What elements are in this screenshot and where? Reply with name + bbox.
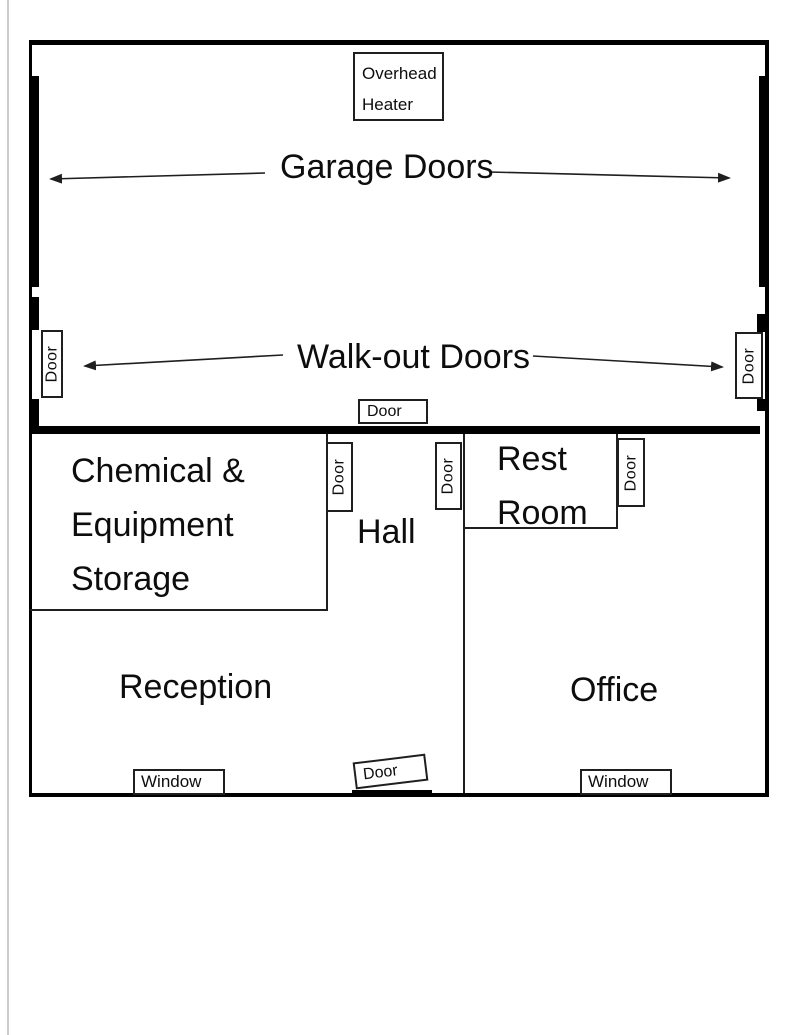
storage-room-label: Chemical & Equipment Storage <box>71 444 245 606</box>
office-label: Office <box>570 663 658 717</box>
storage-door-box: Door <box>326 442 353 512</box>
walkout-left-door-label: Door <box>43 346 61 383</box>
reception-window-label: Window <box>135 772 201 792</box>
walkout-doors-arrow-left <box>85 355 283 366</box>
walkout-left-door-box: Door <box>41 330 63 398</box>
entrance-door-label: Door <box>355 762 399 785</box>
storage-room-label-line1: Chemical & <box>71 444 245 498</box>
walkout-doors-arrow-right <box>533 356 722 367</box>
storage-room-label-line2: Equipment <box>71 498 245 552</box>
garage-doors-arrow-left <box>51 173 265 179</box>
walkout-right-door-box: Door <box>735 332 763 399</box>
restroom-left-door-box: Door <box>435 442 462 510</box>
restroom-right-door-box: Door <box>617 438 645 507</box>
overhead-heater-label-line1: Overhead <box>362 58 442 89</box>
garage-doors-label: Garage Doors <box>280 148 494 186</box>
storage-room-label-line3: Storage <box>71 552 245 606</box>
overhead-heater-label-line2: Heater <box>362 89 442 120</box>
office-window-label: Window <box>582 772 648 792</box>
office-window-box: Window <box>580 769 672 795</box>
restroom-right-door-label: Door <box>622 454 640 491</box>
overhead-heater-box: Overhead Heater <box>353 52 444 121</box>
hall-top-door-box: Door <box>358 399 428 424</box>
restroom-left-door-label: Door <box>440 458 458 495</box>
garage-doors-arrow-right <box>489 172 729 178</box>
hall-top-door-label: Door <box>360 403 402 421</box>
restroom-label-line2: Room <box>497 486 588 540</box>
reception-label: Reception <box>119 660 272 714</box>
hall-label: Hall <box>357 505 416 559</box>
storage-door-label: Door <box>331 459 349 496</box>
walkout-right-door-label: Door <box>740 347 758 384</box>
restroom-label: Rest Room <box>497 432 588 540</box>
restroom-label-line1: Rest <box>497 432 588 486</box>
floor-plan: Overhead Heater Garage Doors Walk-out Do… <box>0 0 800 1035</box>
walkout-doors-label: Walk-out Doors <box>297 338 530 376</box>
reception-window-box: Window <box>133 769 225 795</box>
